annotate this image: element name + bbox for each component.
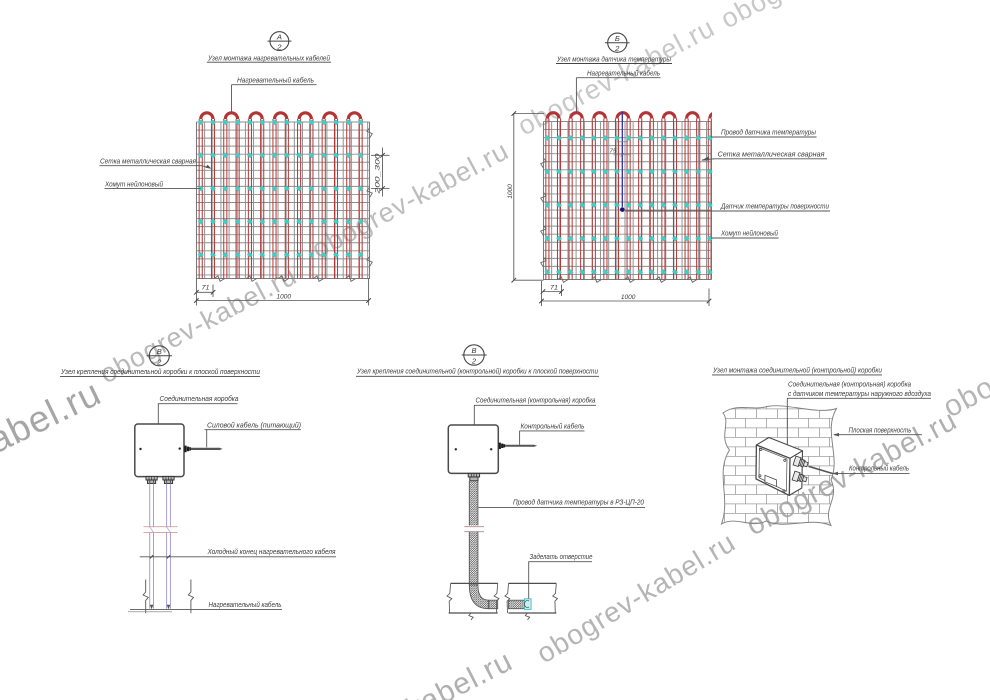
- svg-text:71: 71: [550, 285, 558, 292]
- svg-text:71: 71: [202, 285, 210, 292]
- svg-text:Контрольный кабель: Контрольный кабель: [849, 463, 909, 472]
- svg-text:1000: 1000: [277, 294, 292, 301]
- svg-text:В: В: [471, 346, 476, 355]
- svg-text:Нагревательный кабель: Нагревательный кабель: [209, 600, 282, 609]
- svg-text:2: 2: [471, 357, 477, 366]
- svg-text:75: 75: [610, 149, 618, 155]
- svg-text:2: 2: [156, 357, 162, 366]
- svg-text:Нагревательный кабель: Нагревательный кабель: [237, 76, 314, 85]
- svg-text:200_300: 200_300: [374, 153, 381, 195]
- svg-text:Нагревательный кабель: Нагревательный кабель: [587, 69, 660, 78]
- svg-text:Узел монтажа датчика температу: Узел монтажа датчика температуры: [556, 55, 671, 64]
- svg-text:Хомут нейлоновый: Хомут нейлоновый: [720, 229, 778, 238]
- svg-text:Узел монтажа нагревательных ка: Узел монтажа нагревательных кабелей: [207, 53, 330, 62]
- svg-text:Провод датчика температуры в Р: Провод датчика температуры в РЗ-ЦП-20: [513, 498, 645, 507]
- svg-text:1000: 1000: [621, 294, 636, 301]
- svg-text:Сетка металлическая сварная: Сетка металлическая сварная: [718, 150, 825, 159]
- svg-text:Плоская поверхность: Плоская поверхность: [849, 425, 912, 434]
- svg-text:Хомут нейлоновый: Хомут нейлоновый: [104, 179, 163, 188]
- svg-text:А: А: [276, 32, 282, 41]
- svg-text:1000: 1000: [507, 184, 514, 199]
- svg-text:2: 2: [614, 44, 620, 53]
- svg-text:2: 2: [276, 43, 282, 52]
- svg-text:Узел крепления соединительной: Узел крепления соединительной (контрольн…: [356, 367, 598, 376]
- svg-text:Датчик температуры поверхности: Датчик температуры поверхности: [720, 202, 829, 211]
- svg-text:Сетка металлическая сварная: Сетка металлическая сварная: [100, 156, 196, 165]
- svg-text:с датчиком температуры наружно: с датчиком температуры наружного вдоздух…: [788, 389, 931, 398]
- svg-text:Соединительная коробка: Соединительная коробка: [160, 394, 239, 403]
- svg-text:Силовой кабель (питающий): Силовой кабель (питающий): [207, 420, 301, 429]
- svg-text:Б: Б: [615, 34, 620, 43]
- svg-text:Холодный конец нагревательного: Холодный конец нагревательного кабеля: [207, 547, 336, 556]
- svg-text:Провод датчика температуры: Провод датчика температуры: [721, 128, 816, 137]
- svg-text:Контрольный кабель: Контрольный кабель: [521, 421, 585, 430]
- svg-text:Заделать отверстие: Заделать отверстие: [530, 552, 593, 561]
- svg-text:Соединительная (контрольная) к: Соединительная (контрольная) коробка: [476, 396, 596, 405]
- svg-text:Узел монтажа соединительной (к: Узел монтажа соединительной (контрольной…: [712, 366, 882, 375]
- svg-text:В: В: [157, 347, 162, 356]
- svg-text:Соединительная (контрольная) к: Соединительная (контрольная) коробка: [788, 380, 911, 389]
- svg-text:Узел крепления соединительной: Узел крепления соединительной коробки к …: [60, 367, 260, 376]
